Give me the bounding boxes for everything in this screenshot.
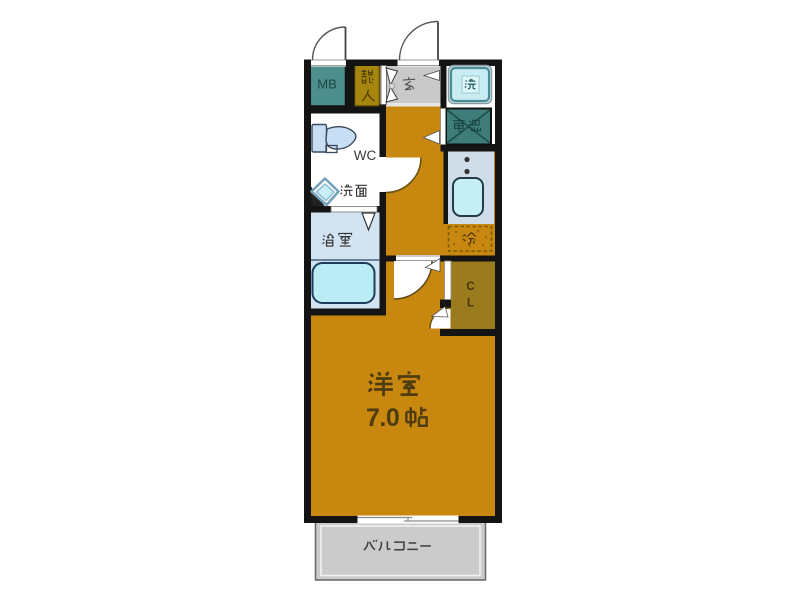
svg-text:MB: MB	[317, 77, 337, 92]
svg-text:WC: WC	[354, 148, 377, 163]
svg-text:C: C	[466, 281, 474, 293]
svg-text:7.0: 7.0	[366, 404, 399, 432]
svg-text:L: L	[467, 298, 474, 310]
